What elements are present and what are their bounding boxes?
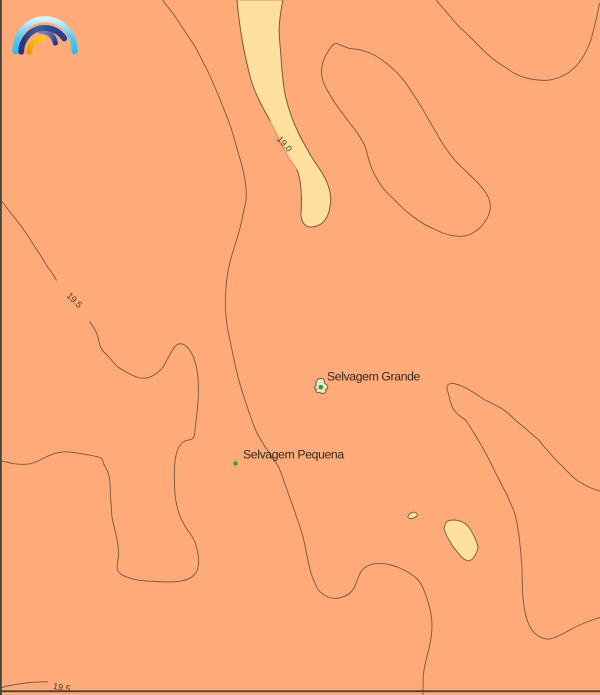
svg-text:Selvagem Grande: Selvagem Grande [327, 370, 421, 384]
svg-text:Selvagem Pequena: Selvagem Pequena [243, 448, 344, 462]
